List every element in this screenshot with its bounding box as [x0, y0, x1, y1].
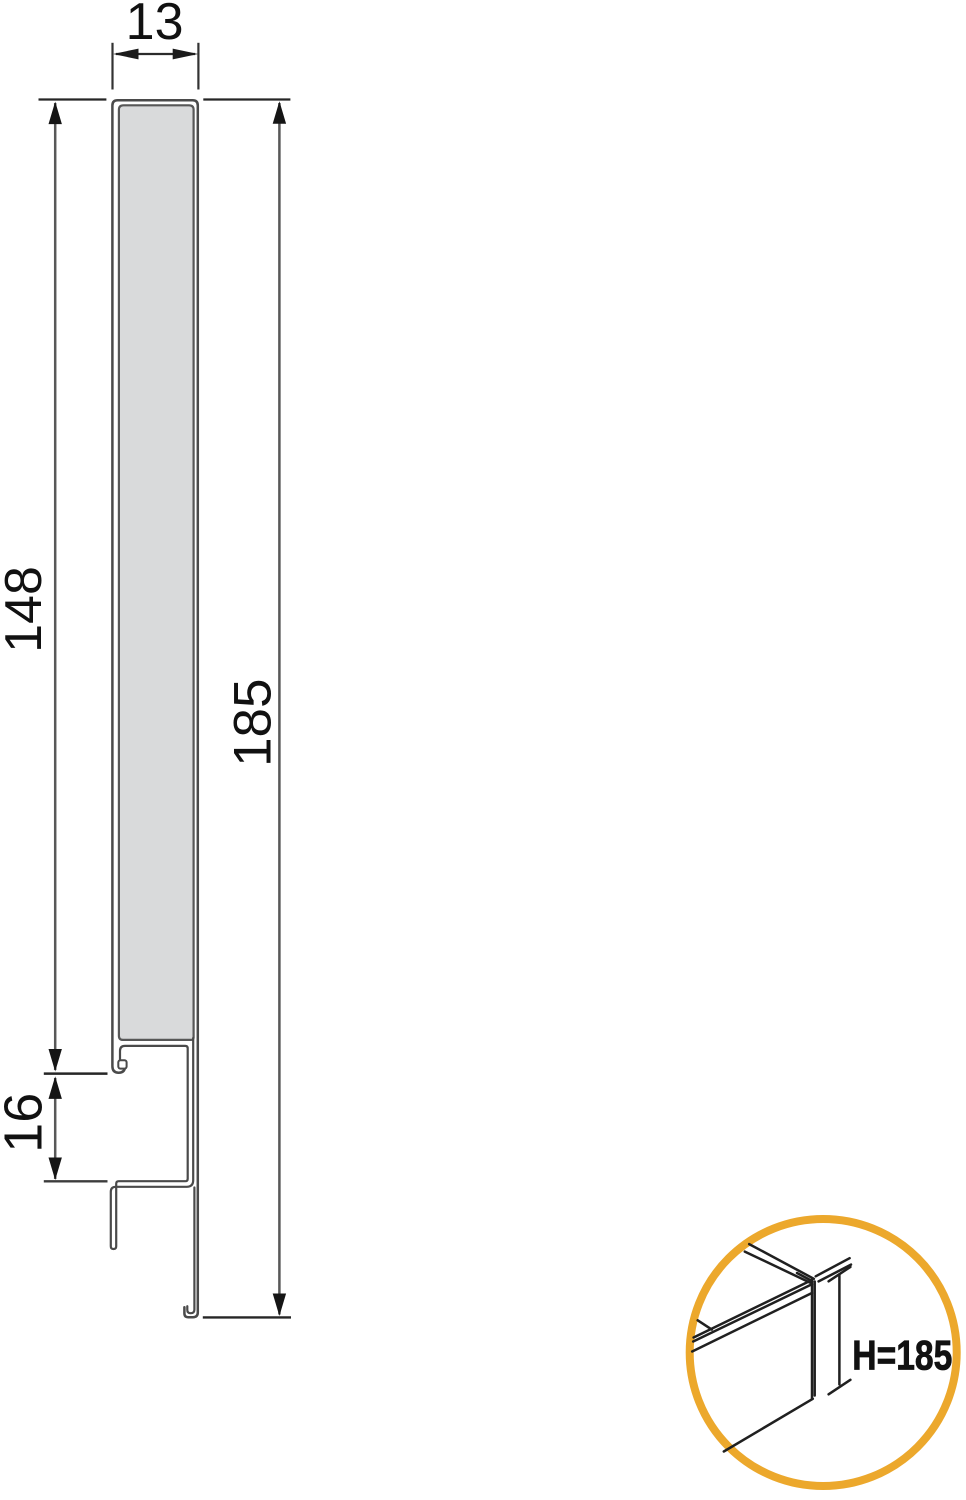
- svg-text:16: 16: [0, 1093, 53, 1153]
- svg-text:H=185: H=185: [852, 1332, 952, 1379]
- svg-text:185: 185: [224, 678, 283, 766]
- svg-text:13: 13: [126, 0, 184, 51]
- svg-text:148: 148: [0, 566, 53, 653]
